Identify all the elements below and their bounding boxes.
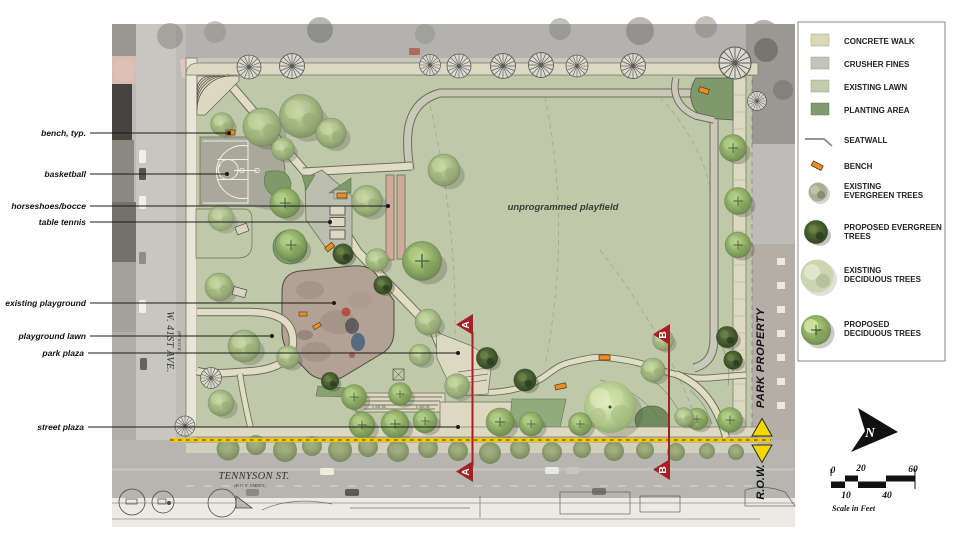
svg-text:PROPOSED: PROPOSED bbox=[844, 320, 890, 329]
svg-text:± 402.00: ± 402.00 bbox=[416, 405, 430, 409]
svg-text:40: 40 bbox=[881, 491, 892, 501]
svg-text:A: A bbox=[460, 468, 472, 476]
svg-text:basketball: basketball bbox=[44, 169, 86, 179]
svg-text:SEATWALL: SEATWALL bbox=[844, 136, 888, 145]
svg-text:Scale in Feet: Scale in Feet bbox=[832, 504, 876, 513]
svg-text:BENCH: BENCH bbox=[844, 162, 873, 171]
svg-text:bench, typ.: bench, typ. bbox=[41, 128, 86, 138]
svg-text:(R.O.W. VARIES): (R.O.W. VARIES) bbox=[234, 483, 266, 488]
svg-text:EXISTING LAWN: EXISTING LAWN bbox=[844, 83, 907, 92]
svg-text:horseshoes/bocce: horseshoes/bocce bbox=[11, 201, 86, 211]
svg-text:EVERGREEN TREES: EVERGREEN TREES bbox=[844, 191, 924, 200]
svg-text:R.O.W.: R.O.W. bbox=[755, 464, 767, 499]
svg-text:park plaza: park plaza bbox=[41, 348, 84, 358]
svg-text:street plaza: street plaza bbox=[37, 422, 84, 432]
svg-text:CONCRETE WALK: CONCRETE WALK bbox=[844, 37, 915, 46]
svg-text:PROPOSED EVERGREEN: PROPOSED EVERGREEN bbox=[844, 223, 942, 232]
svg-text:B: B bbox=[657, 466, 669, 474]
svg-text:table tennis: table tennis bbox=[39, 217, 87, 227]
svg-text:TENNYSON ST.: TENNYSON ST. bbox=[218, 471, 289, 482]
svg-text:N: N bbox=[864, 425, 876, 440]
svg-text:DECIDUOUS TREES: DECIDUOUS TREES bbox=[844, 329, 922, 338]
svg-text:60: 60 bbox=[908, 465, 918, 475]
svg-text:EXISTING: EXISTING bbox=[844, 182, 881, 191]
svg-text:(80' R.O.W.): (80' R.O.W.) bbox=[177, 331, 182, 354]
svg-text:± 401.06: ± 401.06 bbox=[372, 405, 386, 409]
svg-text:unprogrammed playfield: unprogrammed playfield bbox=[508, 202, 619, 213]
svg-text:20: 20 bbox=[855, 464, 866, 474]
svg-text:CRUSHER FINES: CRUSHER FINES bbox=[844, 60, 910, 69]
svg-text:TREES: TREES bbox=[844, 232, 871, 241]
svg-text:A: A bbox=[460, 321, 472, 329]
svg-text:PARK PROPERTY: PARK PROPERTY bbox=[755, 307, 767, 408]
svg-text:B: B bbox=[657, 331, 669, 339]
svg-text:EXISTING: EXISTING bbox=[844, 266, 881, 275]
svg-text:existing playground: existing playground bbox=[5, 298, 87, 308]
svg-text:W. 41ST AVE.: W. 41ST AVE. bbox=[164, 311, 175, 372]
svg-text:10: 10 bbox=[841, 491, 851, 501]
svg-text:DECIDUOUS TREES: DECIDUOUS TREES bbox=[844, 275, 922, 284]
svg-text:PLANTING AREA: PLANTING AREA bbox=[844, 106, 910, 115]
svg-text:playground lawn: playground lawn bbox=[17, 331, 86, 341]
